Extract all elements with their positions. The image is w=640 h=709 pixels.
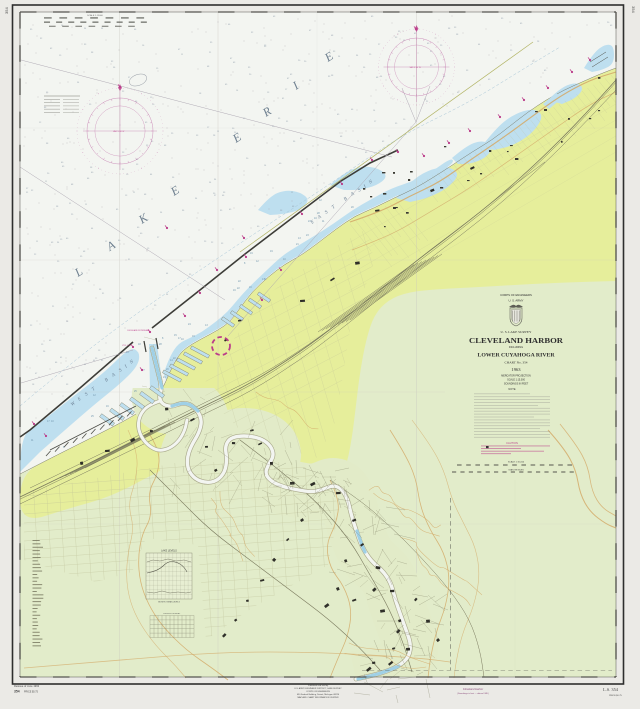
svg-text:354: 354 — [4, 7, 9, 14]
svg-text:Reissue of June 1963: Reissue of June 1963 — [14, 684, 40, 688]
svg-text:1963: 1963 — [511, 367, 521, 372]
svg-text:SCALE 1:15000: SCALE 1:15000 — [87, 14, 103, 17]
svg-text:U. S. LAKE SURVEY: U. S. LAKE SURVEY — [501, 330, 532, 334]
svg-text:354: 354 — [14, 690, 20, 694]
svg-text:SOUNDINGS IN FEET: SOUNDINGS IN FEET — [504, 383, 529, 386]
svg-text:CLEVELAND W PIERHEAD: CLEVELAND W PIERHEAD — [127, 329, 150, 332]
svg-text:L.S. 354: L.S. 354 — [603, 687, 619, 692]
svg-text:MERCATOR PROJECTION: MERCATOR PROJECTION — [501, 375, 531, 378]
svg-text:SCALE 1:15,000: SCALE 1:15,000 — [508, 461, 525, 464]
svg-text:VAR 5°40´W: VAR 5°40´W — [113, 130, 124, 133]
svg-text:CAUTION: CAUTION — [506, 441, 518, 445]
svg-text:354: 354 — [631, 6, 636, 13]
svg-text:CLEVELAND HARBOR: CLEVELAND HARBOR — [469, 338, 564, 345]
svg-text:CORPS OF ENGINEERS: CORPS OF ENGINEERS — [500, 293, 532, 297]
svg-text:MAP AND CHART INFORMATION CENT: MAP AND CHART INFORMATION CENTER — [297, 696, 339, 699]
svg-text:LOWER CUYAHOGA RIVER: LOWER CUYAHOGA RIVER — [478, 353, 555, 359]
svg-text:INCLUDING: INCLUDING — [509, 345, 523, 349]
svg-text:CHART No. 354: CHART No. 354 — [505, 361, 528, 365]
svg-text:MONTHLY MEAN LEVELS: MONTHLY MEAN LEVELS — [158, 601, 180, 604]
svg-text:LAKE LEVELS: LAKE LEVELS — [161, 550, 177, 553]
svg-text:SCALE 1:15,000: SCALE 1:15,000 — [507, 379, 525, 382]
svg-text:Cleveland Harbor: Cleveland Harbor — [463, 687, 483, 691]
svg-text:PRICE $0.75: PRICE $0.75 — [609, 695, 623, 697]
svg-text:PRICE $0.75: PRICE $0.75 — [24, 691, 39, 694]
svg-text:VAR 5°40´W: VAR 5°40´W — [410, 66, 421, 69]
svg-text:630 Federal Building, Detroit,: 630 Federal Building, Detroit, Michigan … — [297, 693, 340, 696]
svg-text:NOTE: NOTE — [508, 387, 515, 391]
svg-text:STATUTE MILES: STATUTE MILES — [508, 468, 524, 471]
svg-text:LEVELS IN FEET: LEVELS IN FEET — [163, 613, 181, 615]
svg-text:CORPS OF ENGINEERS: CORPS OF ENGINEERS — [306, 691, 330, 693]
svg-text:(Soundings in feet — datum LWD: (Soundings in feet — datum LWD) — [457, 692, 489, 695]
svg-text:U. S. ARMY: U. S. ARMY — [509, 299, 524, 303]
svg-text:Published and sold by: Published and sold by — [308, 685, 329, 687]
svg-text:LT FL G 5s: LT FL G 5s — [122, 345, 131, 347]
svg-text:U.S. ARMY ENGINEER DISTRICT, L: U.S. ARMY ENGINEER DISTRICT, LAKE SURVEY — [294, 687, 342, 690]
